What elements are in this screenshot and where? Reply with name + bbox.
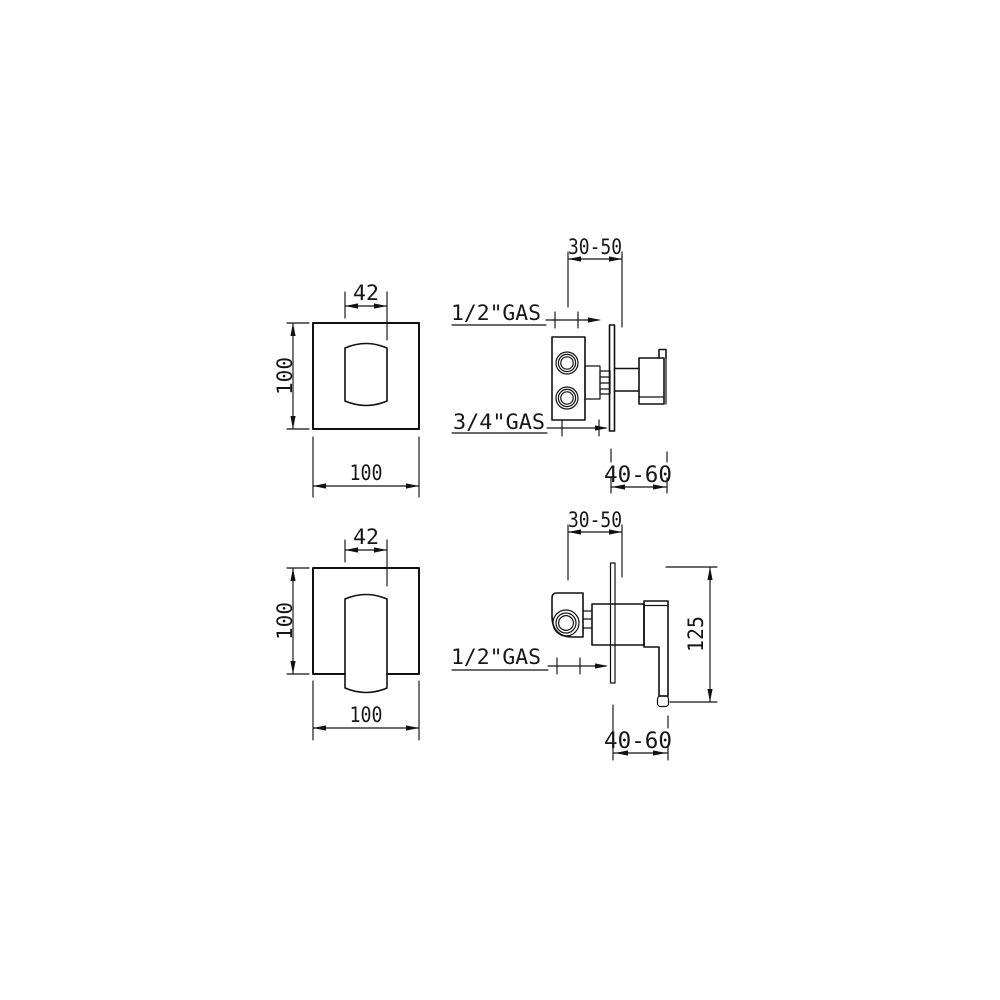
- bottom-front-view: 42 100 100: [273, 525, 419, 740]
- bottom-front-lever-outline: [345, 595, 387, 693]
- dim-label-100-bottom-horizontal: 100: [350, 703, 383, 727]
- bottom-side-dim-30-50: 30-50: [568, 508, 622, 580]
- top-front-dim-100-horizontal: 100: [313, 437, 419, 497]
- bottom-side-connector: [583, 611, 592, 628]
- top-side-inlet-port-bottom: [556, 387, 578, 409]
- top-front-plate-outline: [313, 323, 419, 429]
- dim-label-42-top: 42: [353, 281, 379, 305]
- top-front-handle-outline: [345, 344, 387, 406]
- top-front-dim-42: 42: [345, 281, 387, 340]
- top-side-dim-30-50: 30-50: [568, 235, 622, 327]
- bottom-front-dim-42: 42: [345, 525, 387, 586]
- bottom-front-dim-100-horizontal: 100: [313, 681, 419, 740]
- top-side-body: [552, 337, 585, 420]
- top-side-cartridge: [585, 366, 600, 399]
- top-side-dim-40-60: 40-60: [604, 449, 672, 493]
- dim-label-40-60-bottom: 40-60: [604, 729, 672, 754]
- label-half-gas-bottom: 1/2"GAS: [451, 645, 541, 669]
- top-front-view: 42 100 100: [273, 281, 419, 497]
- top-side-view: 30-50 1/2"GAS 3/4"GAS 40-60: [451, 235, 672, 493]
- dim-label-30-50-top: 30-50: [568, 235, 622, 259]
- bottom-side-dim-40-60: 40-60: [604, 705, 672, 760]
- top-side-handle: [639, 350, 666, 405]
- technical-drawing-page: 42 100 100: [0, 0, 1000, 1000]
- bottom-side-dim-125: 125: [666, 567, 717, 702]
- bottom-side-body: [592, 604, 644, 645]
- bottom-side-wall-plate: [611, 563, 616, 683]
- top-side-leader-half-gas: 1/2"GAS: [451, 301, 601, 328]
- dim-label-40-60-top: 40-60: [604, 463, 672, 488]
- dim-label-30-50-bottom: 30-50: [568, 508, 622, 532]
- bottom-front-plate-outline: [313, 568, 419, 674]
- label-half-gas-top: 1/2"GAS: [451, 301, 541, 325]
- mixer-dimension-drawing: 42 100 100: [0, 0, 1000, 1000]
- dim-label-100-bottom-vertical: 100: [273, 602, 297, 640]
- bottom-side-view: 30-50 1/2"GAS 125 40-60: [451, 508, 717, 760]
- dim-label-100-top-horizontal: 100: [350, 461, 383, 485]
- label-threequarter-gas: 3/4"GAS: [453, 410, 545, 434]
- top-front-dim-100-vertical: 100: [273, 323, 309, 429]
- top-side-inlet-port-top: [556, 352, 578, 374]
- bottom-front-dim-100-vertical: 100: [273, 568, 309, 674]
- dim-label-100-top-vertical: 100: [273, 357, 297, 395]
- dim-label-42-bottom: 42: [353, 525, 379, 549]
- bottom-side-lever-handle: [644, 601, 669, 707]
- top-side-stem: [615, 369, 640, 392]
- dim-label-125: 125: [684, 616, 708, 652]
- bottom-side-inlet-port: [553, 610, 579, 636]
- bottom-side-leader-half-gas: 1/2"GAS: [451, 645, 608, 674]
- top-side-spline-shaft: [600, 371, 610, 394]
